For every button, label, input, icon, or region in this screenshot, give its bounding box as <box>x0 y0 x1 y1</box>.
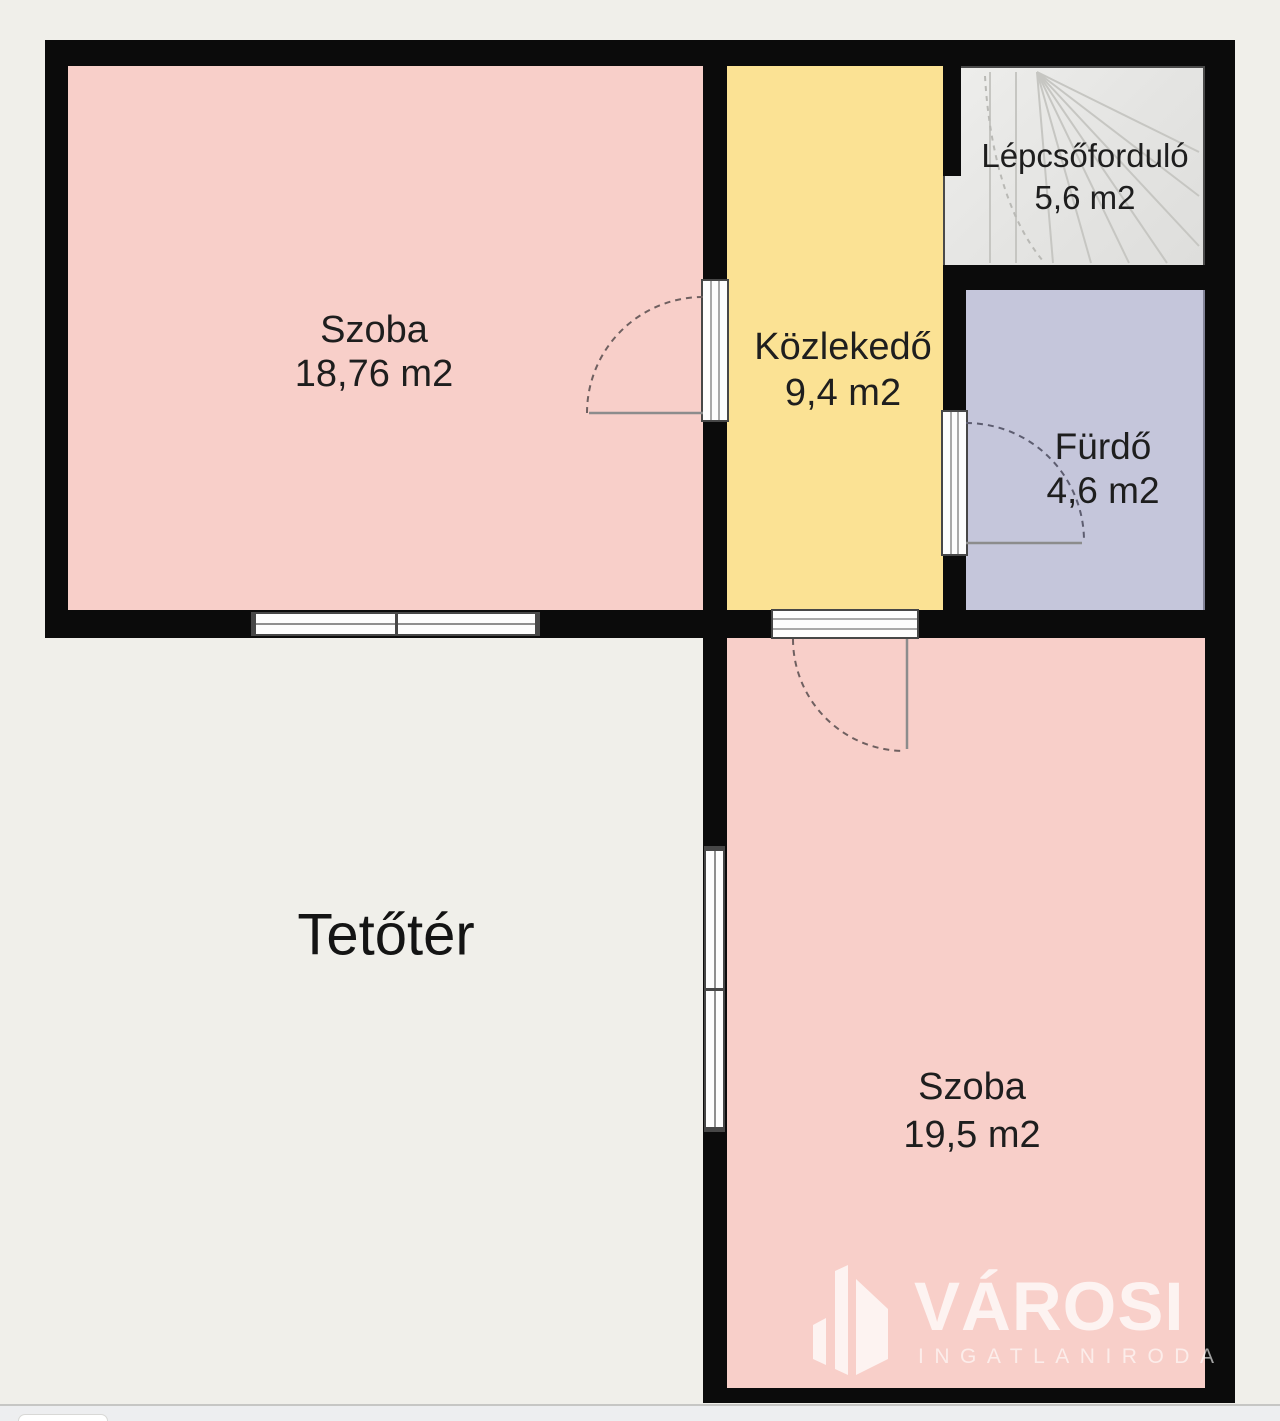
room-area: 18,76 m2 <box>295 352 453 396</box>
door-frame-furdo <box>941 410 968 556</box>
room-label-tetoter: Tetőtér <box>297 902 474 969</box>
wall-right <box>1205 40 1235 1403</box>
wall-stair-stub <box>943 66 961 176</box>
room-area: 4,6 m2 <box>1046 469 1159 513</box>
brand-name: VÁROSI <box>914 1267 1185 1346</box>
wall-furdo-left-lower <box>943 554 966 612</box>
window-szoba1 <box>251 612 540 636</box>
room-label-kozlekedo: Közlekedő 9,4 m2 <box>754 324 931 416</box>
room-name: Közlekedő <box>754 324 931 370</box>
window-szoba2 <box>704 846 725 1132</box>
watermark-logo: VÁROSI INGATLANIRODA <box>810 1263 1240 1388</box>
room-name: Fürdő <box>1046 425 1159 469</box>
bottom-bar <box>0 1404 1280 1421</box>
brand-subtitle: INGATLANIRODA <box>918 1345 1224 1369</box>
room-label-furdo: Fürdő 4,6 m2 <box>1046 425 1159 513</box>
wall-top <box>45 40 1235 66</box>
wall-mid-horizontal <box>45 610 1235 638</box>
room-name: Lépcsőforduló <box>981 135 1188 177</box>
wall-stair-bottom <box>943 265 1235 290</box>
room-label-lepcsofordulo: Lépcsőforduló 5,6 m2 <box>981 135 1188 219</box>
wall-bottom <box>703 1388 1235 1403</box>
room-area: 5,6 m2 <box>981 177 1188 219</box>
room-area: 19,5 m2 <box>903 1111 1040 1159</box>
wall-left <box>45 40 68 638</box>
partial-button[interactable] <box>18 1414 108 1421</box>
room-name: Szoba <box>295 308 453 352</box>
room-label-szoba-1: Szoba 18,76 m2 <box>295 308 453 396</box>
buildings-icon <box>810 1263 890 1378</box>
door-frame-szoba2 <box>771 609 919 639</box>
room-area: 9,4 m2 <box>754 370 931 416</box>
door-frame-szoba1 <box>701 279 729 422</box>
floorplan-canvas: Szoba 18,76 m2 Közlekedő 9,4 m2 Lépcsőfo… <box>0 0 1280 1421</box>
wall-furdo-left-upper <box>943 288 966 412</box>
room-label-szoba-2: Szoba 19,5 m2 <box>903 1063 1040 1159</box>
room-name: Szoba <box>903 1063 1040 1111</box>
